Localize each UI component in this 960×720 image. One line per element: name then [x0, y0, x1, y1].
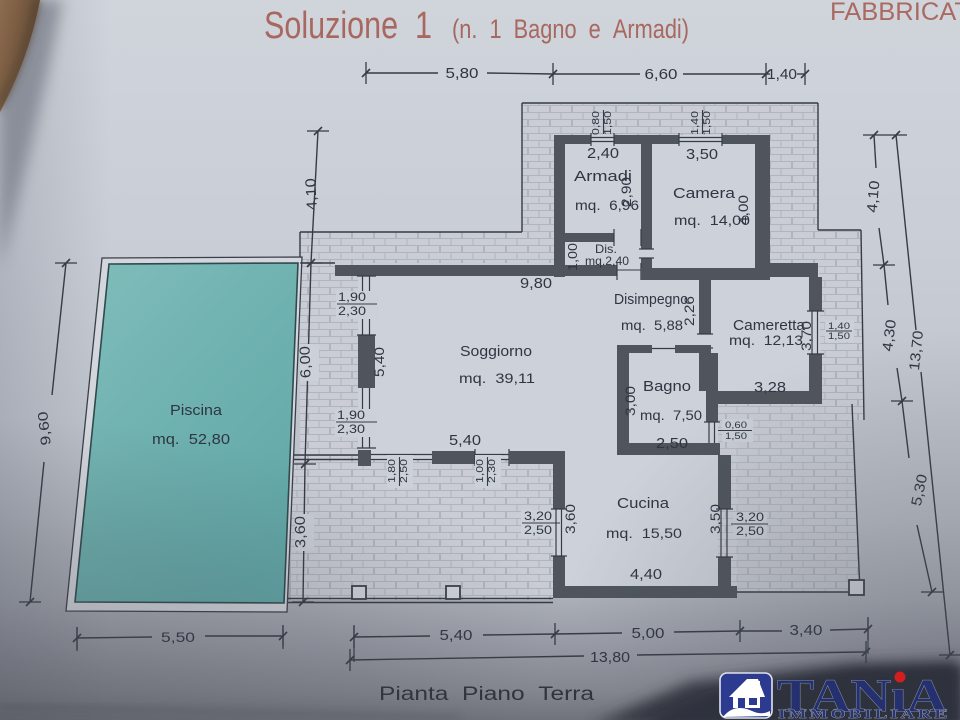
svg-text:2,26: 2,26	[682, 296, 697, 326]
svg-text:4,10: 4,10	[303, 178, 321, 211]
svg-text:Soggiorno: Soggiorno	[460, 343, 532, 360]
svg-text:4,00: 4,00	[736, 195, 751, 225]
svg-text:2,90: 2,90	[619, 177, 634, 207]
svg-text:6,60: 6,60	[645, 67, 678, 83]
svg-text:1,90: 1,90	[337, 408, 365, 422]
svg-text:Camera: Camera	[673, 186, 736, 202]
svg-text:1,50: 1,50	[603, 110, 614, 135]
svg-text:Soluzione 1: Soluzione 1	[264, 5, 432, 47]
svg-text:1,90: 1,90	[338, 290, 366, 304]
svg-text:Disimpegno: Disimpegno	[614, 292, 688, 308]
svg-text:FABBRICAT: FABBRICAT	[830, 0, 960, 26]
svg-text:mq.2,40: mq.2,40	[585, 256, 629, 268]
svg-text:1,40: 1,40	[690, 110, 701, 135]
svg-text:6,00: 6,00	[297, 346, 314, 379]
svg-text:Piscina: Piscina	[170, 402, 223, 419]
svg-text:2,30: 2,30	[338, 304, 366, 318]
svg-text:5,40: 5,40	[372, 347, 387, 377]
svg-text:3,50: 3,50	[686, 147, 718, 163]
svg-text:5,80: 5,80	[446, 66, 479, 82]
svg-text:0,80: 0,80	[591, 110, 602, 135]
svg-text:mq. 39,11: mq. 39,11	[459, 370, 535, 386]
svg-text:1,00: 1,00	[566, 243, 580, 271]
svg-text:Dis.: Dis.	[595, 242, 617, 256]
svg-text:1,40: 1,40	[767, 67, 797, 83]
svg-text:IMMOBILIARE: IMMOBILIARE	[778, 706, 950, 720]
svg-text:4,10: 4,10	[865, 180, 884, 213]
svg-text:9,80: 9,80	[520, 276, 552, 292]
svg-text:1,50: 1,50	[702, 110, 713, 135]
svg-text:(n. 1 Bagno e Armadi): (n. 1 Bagno e Armadi)	[452, 14, 689, 44]
svg-text:2,40: 2,40	[587, 146, 619, 162]
